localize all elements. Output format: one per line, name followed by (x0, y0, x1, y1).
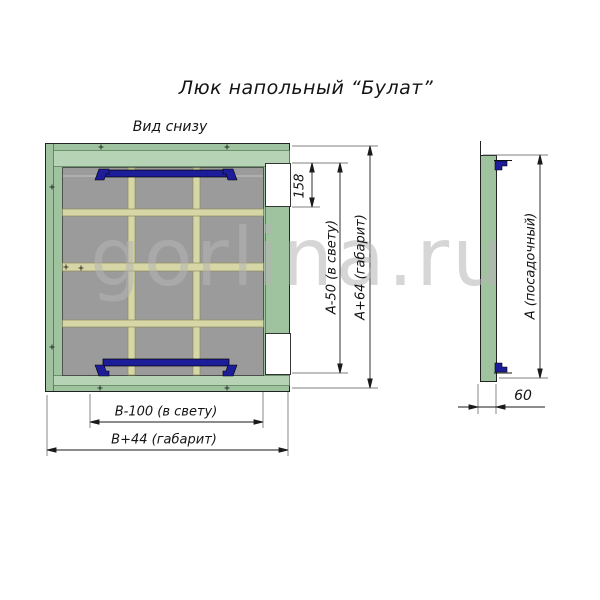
drawing-title: Люк напольный “Булат” (179, 77, 433, 99)
dim-overall-height: А+64 (габарит) (354, 214, 369, 320)
dim-cutout-height: 158 (293, 174, 308, 199)
bottom-view-label: Вид снизу (133, 119, 208, 135)
drawing-sheet: gorlina.ru Люк напольный “Булат” Вид сни… (0, 0, 600, 600)
dim-seating-height: А (посадочный) (524, 213, 539, 320)
dim-clear-height: А-50 (в свету) (325, 220, 340, 314)
dim-profile-depth: 60 (514, 388, 532, 404)
dim-clear-width: В-100 (в свету) (115, 405, 218, 420)
dim-overall-width: В+44 (габарит) (111, 433, 217, 448)
text-layer: Люк напольный “Булат” Вид снизу 158 А-50… (0, 0, 600, 600)
